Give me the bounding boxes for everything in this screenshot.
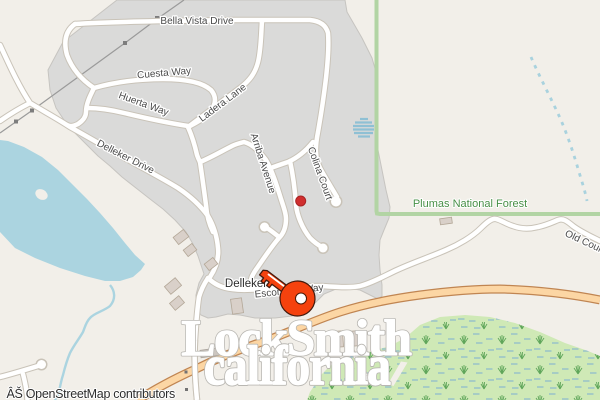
svg-text:Bella Vista Drive: Bella Vista Drive xyxy=(160,16,234,27)
svg-text:Delleker: Delleker xyxy=(225,278,267,290)
svg-text:Plumas National Forest: Plumas National Forest xyxy=(413,198,527,210)
svg-text:ÂŠ OpenStreetMap contributors: ÂŠ OpenStreetMap contributors xyxy=(7,386,176,400)
svg-text:california: california xyxy=(204,335,390,396)
